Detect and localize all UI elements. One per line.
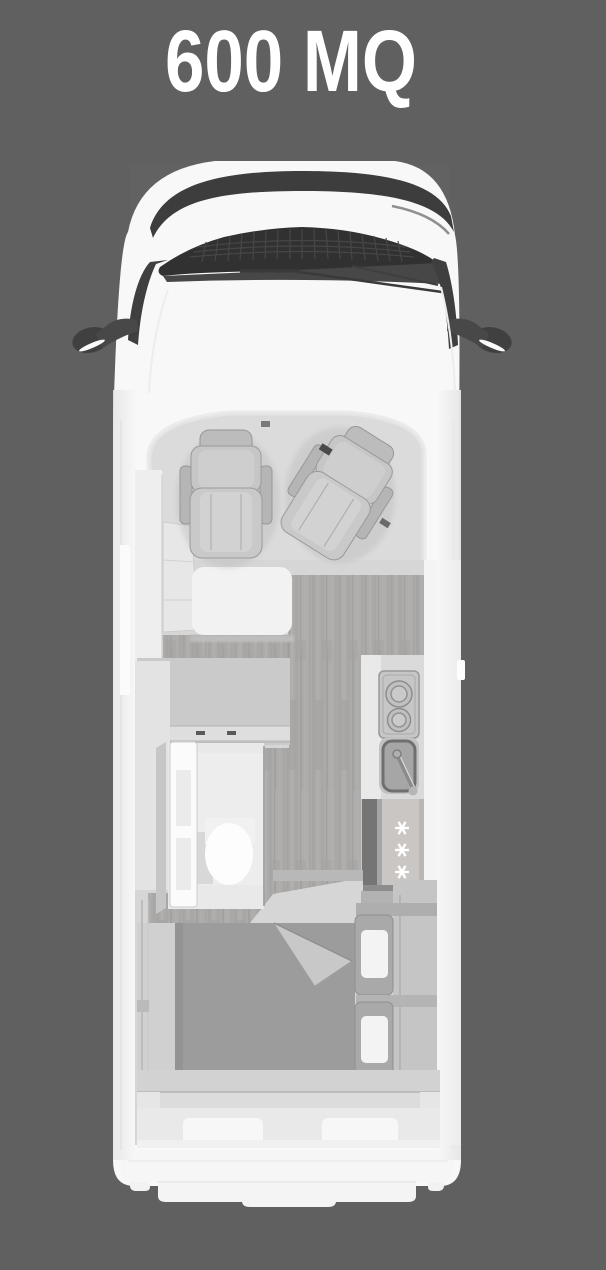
svg-text:600 MQ: 600 MQ bbox=[165, 13, 417, 110]
